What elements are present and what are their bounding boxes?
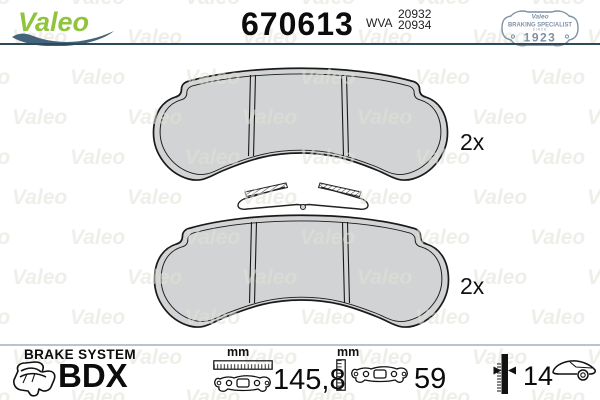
badge-rivet-icon (511, 35, 514, 38)
valeo-logo-text: Valeo (18, 7, 89, 37)
ruler-vertical-icon (336, 359, 346, 391)
height-value: 59 (414, 363, 446, 396)
footer-divider (0, 344, 600, 346)
wva-number: 20934 (398, 20, 431, 31)
height-unit-label: mm (337, 345, 359, 359)
width-unit-label: mm (227, 345, 249, 359)
thickness-icon (489, 353, 523, 395)
wva-label: WVA (366, 16, 392, 30)
badge-brand: Valeo (531, 14, 548, 21)
pad-back-view-icon (349, 362, 409, 388)
badge-rivet-icon (565, 35, 568, 38)
valeo-logo: Valeo (8, 4, 120, 46)
thickness-value: 14 (523, 361, 553, 392)
quantity-label-bottom: 2x (460, 273, 484, 300)
header-divider (0, 43, 600, 45)
wva-numbers: 20932 20934 (398, 9, 431, 31)
product-image: ValeoValeoValeoValeoValeoValeoValeoValeo… (0, 0, 600, 400)
part-number: 670613 (241, 6, 354, 43)
width-value: 145,8 (273, 364, 346, 397)
quantity-label-top: 2x (460, 129, 484, 156)
caliper-icon (8, 359, 60, 397)
ruler-horizontal-icon (213, 360, 273, 370)
brake-system-value: BDX (58, 357, 128, 395)
pad-back-view-icon (212, 371, 272, 397)
car-side-icon (551, 357, 597, 385)
